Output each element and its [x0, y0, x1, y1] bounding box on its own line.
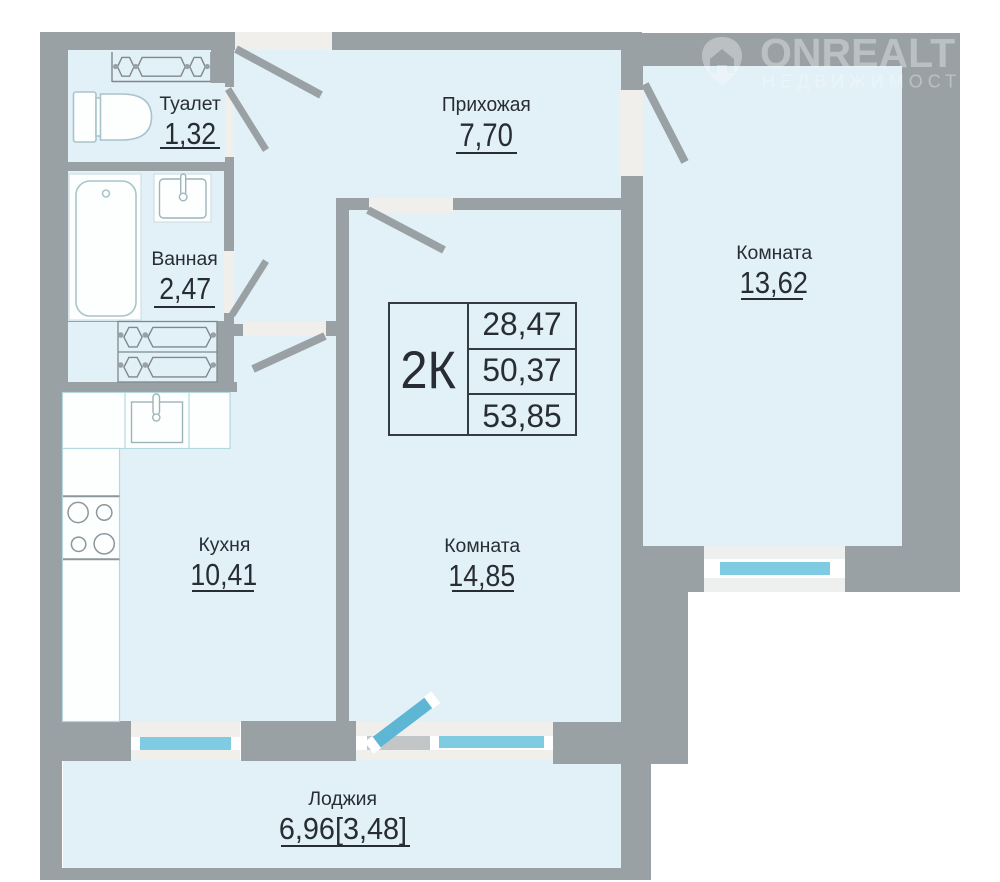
svg-text:НЕДВИЖИМОСТЬ: НЕДВИЖИМОСТЬ [762, 72, 978, 92]
svg-text:ONREALT: ONREALT [760, 30, 955, 76]
